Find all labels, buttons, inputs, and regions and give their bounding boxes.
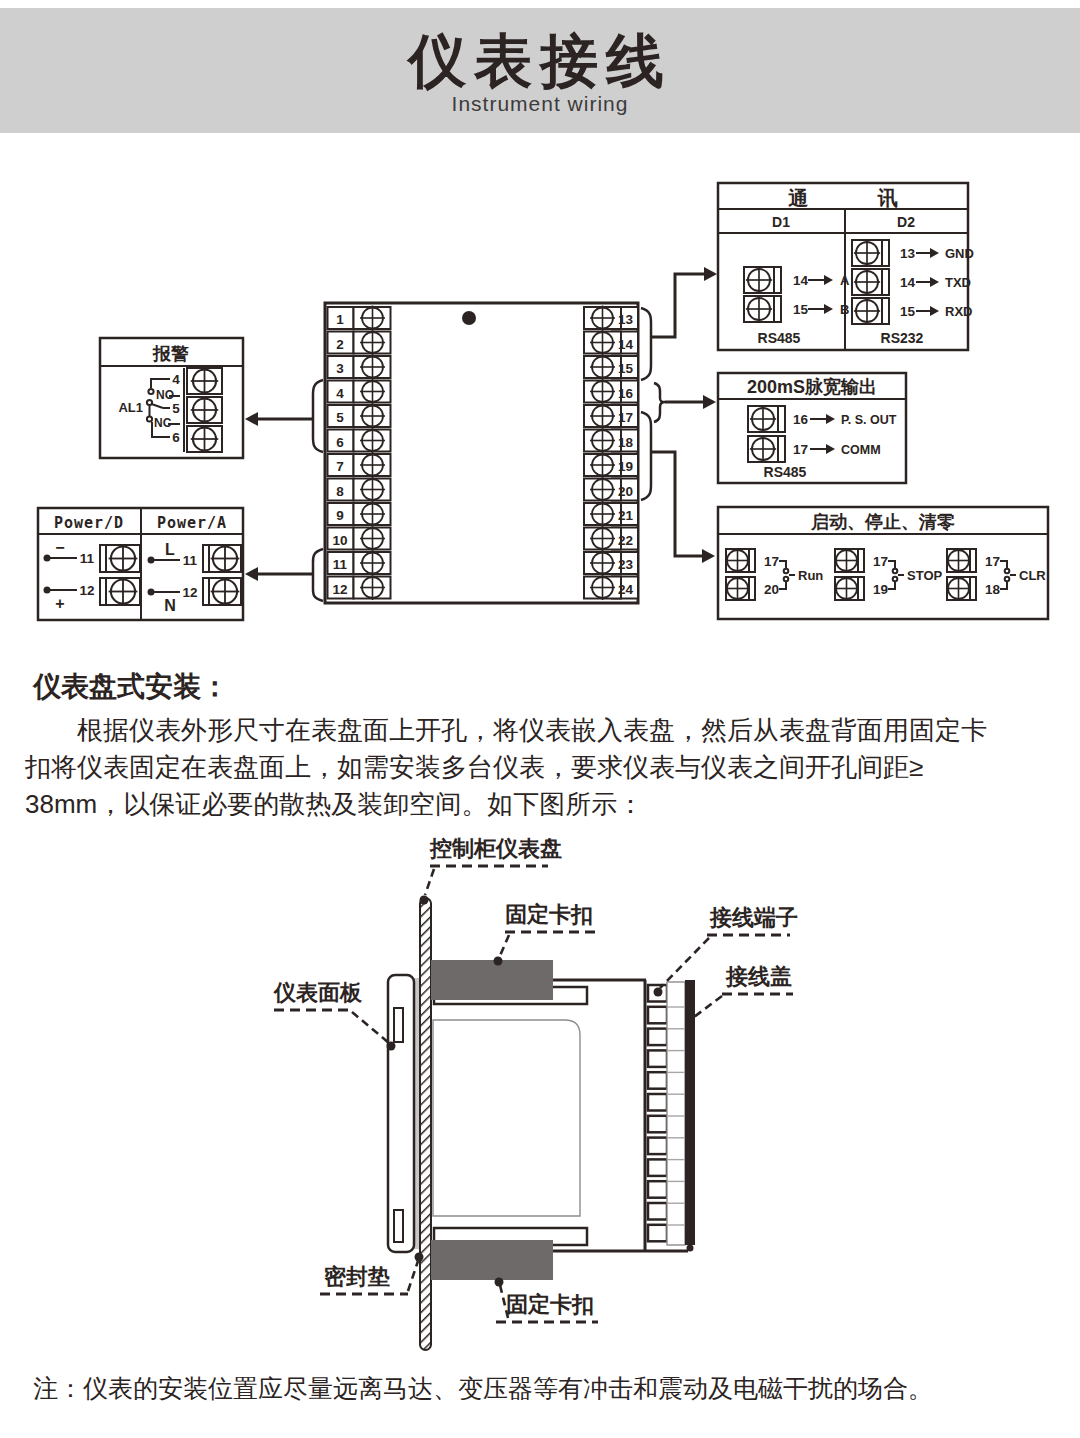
terminal-number: 2: [336, 337, 344, 352]
switch-lead: [1000, 561, 1007, 569]
switch-lead: [888, 581, 895, 589]
terminal-number: 17: [618, 410, 633, 425]
terminal-number: 21: [618, 508, 634, 523]
svg-text:A: A: [840, 273, 850, 288]
svg-text:固定卡扣: 固定卡扣: [506, 1292, 594, 1317]
installation-diagram: 控制柜仪表盘 固定卡扣 接线端子 接线盖 仪表面板: [0, 825, 1080, 1370]
terminal-number: 13: [618, 312, 634, 327]
fixing-clip-top: [431, 960, 553, 1000]
comm-d2-row: 14 TXD: [852, 269, 971, 295]
pulse-title: 200mS脉宽输出: [747, 377, 877, 397]
comm-d1-bus: RS485: [758, 330, 801, 346]
cabinet-panel-bar: [420, 898, 431, 1350]
terminal-number: 14: [618, 337, 634, 352]
control-title: 启动、停止、清零: [810, 512, 955, 532]
fixing-clip-bottom: [431, 1240, 553, 1280]
arrow-icon: [930, 277, 939, 287]
terminal-number: 24: [618, 582, 634, 597]
terminal-number: 18: [985, 582, 1001, 597]
alarm-terminal: 4: [172, 372, 180, 387]
svg-text:控制柜仪表盘: 控制柜仪表盘: [429, 836, 562, 861]
comm-title: 通 讯: [787, 187, 930, 209]
comm-col-d2: D2: [897, 214, 915, 230]
control-action-label: CLR: [1019, 568, 1046, 583]
terminal-strip-segment: [648, 1203, 667, 1220]
terminal-number: 22: [618, 533, 633, 548]
power-d-title: Power/D: [54, 514, 124, 532]
svg-text:+: +: [55, 595, 64, 612]
label-faceplate: 仪表面板: [273, 980, 396, 1051]
svg-text:TXD: TXD: [945, 275, 971, 290]
power-d-rows: − 11 + 12: [44, 539, 141, 612]
alarm-no-label: NO: [156, 388, 174, 402]
terminal-strip-segment: [648, 1159, 667, 1176]
arrow-icon: [826, 414, 835, 424]
terminal-number: 9: [336, 508, 344, 523]
alarm-wire: [245, 380, 323, 452]
arrow-icon: [824, 275, 833, 285]
arrow-icon: [824, 304, 833, 314]
switch-contact: [784, 577, 789, 582]
terminal-number: 11: [333, 557, 348, 572]
pulse-box: 200mS脉宽输出 16 P. S. OUT 17 COMM RS485: [718, 373, 906, 483]
terminal-strip-back: [667, 982, 685, 1245]
terminal-number: 12: [332, 582, 347, 597]
terminal-cover-bar: [685, 980, 695, 1245]
svg-text:13: 13: [900, 246, 916, 261]
label-fixing-clip-top: 固定卡扣: [494, 902, 599, 966]
arrowhead-left: [245, 412, 258, 426]
switch-contact: [1005, 577, 1010, 582]
comm-d2-row: 15 RXD: [852, 298, 972, 324]
svg-text:17: 17: [793, 442, 808, 457]
svg-text:15: 15: [793, 302, 809, 317]
label-fixing-clip-bottom: 固定卡扣: [495, 1278, 599, 1323]
arrow-icon: [826, 444, 835, 454]
svg-text:COMM: COMM: [841, 443, 881, 457]
terminal-number: 6: [336, 435, 344, 450]
terminal-strip-segment: [648, 1094, 667, 1111]
svg-text:仪表面板: 仪表面板: [273, 980, 363, 1005]
comm-col-d1: D1: [772, 214, 790, 230]
terminal-number: 15: [618, 361, 634, 376]
control-box: 启动、停止、清零 1720Run1719STOP1718CLR: [718, 507, 1048, 619]
terminal-number: 20: [764, 582, 779, 597]
terminal-number: 16: [618, 386, 634, 401]
comm-wire: [641, 267, 717, 380]
svg-text:12: 12: [79, 583, 94, 598]
terminal-number: 19: [618, 459, 633, 474]
pulse-bus: RS485: [764, 464, 807, 480]
svg-text:N: N: [164, 597, 176, 614]
wiring-diagram: 123456789101112131415161718192021222324: [0, 0, 1080, 660]
control-action-label: STOP: [907, 568, 942, 583]
arrow-icon: [930, 248, 939, 258]
svg-text:GND: GND: [945, 246, 974, 261]
terminal-number: 17: [985, 554, 1000, 569]
terminal-number: 17: [873, 554, 888, 569]
paragraph-line: 根据仪表外形尺寸在表盘面上开孔，将仪表嵌入表盘，然后从表盘背面用固定卡: [25, 712, 1035, 749]
switch-contact: [893, 569, 898, 574]
pulse-row: 17 COMM: [748, 436, 881, 462]
note-line: 注：仪表的安装位置应尽量远离马达、变压器等有冲击和震动及电磁干扰的场合。: [33, 1372, 1063, 1405]
power-box: Power/D Power/A − 11 + 12 L 11: [38, 508, 243, 620]
terminal-number: 17: [764, 554, 779, 569]
terminal-number: 7: [336, 459, 344, 474]
terminal-strip-segment: [648, 1225, 667, 1242]
power-a-title: Power/A: [157, 514, 227, 532]
label-gasket: 密封垫: [320, 1253, 424, 1295]
manual-page: 仪表接线 Instrument wiring 12345678910111213…: [0, 0, 1080, 1438]
terminal-strip-segment: [648, 1007, 667, 1024]
switch-contact: [893, 577, 898, 582]
svg-text:接线端子: 接线端子: [709, 905, 798, 930]
label-terminal-cover: 接线盖: [694, 964, 793, 1017]
svg-text:14: 14: [900, 275, 916, 290]
terminal-strip-segment: [648, 1138, 667, 1155]
terminal-number: 4: [336, 386, 344, 401]
control-group: 1720Run: [725, 548, 823, 601]
control-groups: 1720Run1719STOP1718CLR: [725, 548, 1046, 601]
control-action-label: Run: [798, 568, 823, 583]
control-wire: [641, 412, 715, 563]
power-a-rows: L 11 N 12: [148, 541, 242, 614]
main-terminal-block: 123456789101112131415161718192021222324: [325, 303, 638, 603]
alarm-terminal: 6: [172, 430, 180, 445]
svg-text:11: 11: [183, 553, 198, 568]
terminal-strip-segment: [648, 1181, 667, 1198]
pulse-wire: [654, 383, 716, 422]
svg-text:P. S. OUT: P. S. OUT: [841, 413, 897, 427]
arrowhead-right: [703, 395, 716, 409]
alarm-box: 报警 4 5 6 NO NC AL1: [100, 338, 243, 458]
switch-contact: [1005, 569, 1010, 574]
comm-d1-row: 15 B: [744, 296, 849, 322]
comm-box: 通 讯 D1 D2 14 A 15 B RS485: [718, 183, 974, 350]
faceplate: [388, 975, 414, 1252]
terminal-strip-segment: [648, 1072, 667, 1089]
arrowhead-right: [704, 267, 717, 281]
svg-text:12: 12: [182, 585, 197, 600]
terminal-number: 8: [336, 484, 344, 499]
terminal-number: 23: [618, 557, 634, 572]
arrowhead-left: [245, 567, 258, 581]
svg-text:RXD: RXD: [945, 304, 972, 319]
terminal-number: 18: [618, 435, 634, 450]
svg-text:接线盖: 接线盖: [725, 964, 792, 989]
control-group: 1718CLR: [946, 548, 1046, 601]
terminal-number: 1: [336, 312, 344, 327]
arrow-icon: [930, 306, 939, 316]
main-terminal-rows: 123456789101112131415161718192021222324: [328, 306, 639, 601]
comm-d2-bus: RS232: [881, 330, 924, 346]
svg-text:11: 11: [80, 551, 95, 566]
alarm-nc-label: NC: [154, 416, 172, 430]
display-area: [433, 1020, 580, 1216]
terminal-number: 10: [332, 533, 347, 548]
switch-lead: [1000, 581, 1007, 589]
svg-text:密封垫: 密封垫: [324, 1264, 390, 1289]
terminal-strip-segment: [648, 1029, 667, 1046]
control-group: 1719STOP: [834, 548, 942, 601]
install-paragraph: 根据仪表外形尺寸在表盘面上开孔，将仪表嵌入表盘，然后从表盘背面用固定卡 扣将仪表…: [25, 712, 1035, 823]
switch-contact: [784, 569, 789, 574]
terminal-number: 19: [873, 582, 888, 597]
comm-d2-row: 13 GND: [852, 240, 974, 266]
arrowhead-right: [702, 549, 715, 563]
svg-text:−: −: [55, 539, 64, 556]
paragraph-line: 38mm，以保证必要的散热及装卸空间。如下图所示：: [25, 786, 1035, 823]
comm-d1-row: 14 A: [744, 267, 850, 293]
terminal-strip-segment: [648, 1116, 667, 1133]
svg-text:15: 15: [900, 304, 916, 319]
switch-lead: [888, 561, 895, 569]
svg-text:B: B: [840, 302, 849, 317]
install-heading: 仪表盘式安装：: [33, 668, 229, 706]
svg-text:16: 16: [793, 412, 809, 427]
pulse-row: 16 P. S. OUT: [748, 406, 897, 432]
terminal-number: 3: [336, 361, 344, 376]
alarm-relay-label: AL1: [118, 400, 143, 415]
switch-lead: [779, 581, 786, 589]
power-wire: [245, 549, 323, 601]
terminal-number: 20: [618, 484, 633, 499]
terminal-strip-segment: [648, 1050, 667, 1067]
alarm-title: 报警: [152, 344, 189, 364]
alarm-terminal: 5: [172, 401, 180, 416]
svg-text:14: 14: [793, 273, 809, 288]
svg-text:固定卡扣: 固定卡扣: [505, 902, 593, 927]
terminal-strip: [648, 985, 667, 1241]
paragraph-line: 扣将仪表固定在表盘面上，如需安装多台仪表，要求仪表与仪表之间开孔间距≥: [25, 749, 1035, 786]
alarm-relay-switch: NO NC AL1: [118, 379, 180, 437]
mounting-dot: [462, 311, 476, 325]
terminal-number: 5: [336, 410, 344, 425]
switch-lead: [779, 561, 786, 569]
svg-text:L: L: [165, 541, 175, 558]
label-cabinet-panel: 控制柜仪表盘: [420, 836, 563, 905]
